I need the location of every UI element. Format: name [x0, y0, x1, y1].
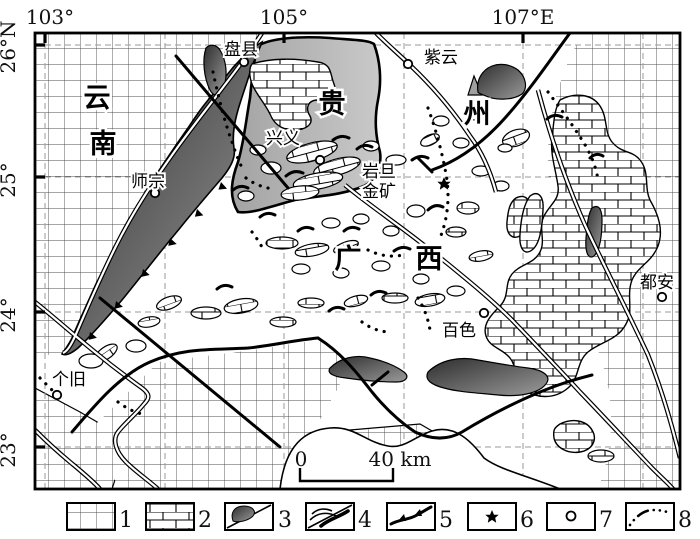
legend-number-1: 1	[119, 508, 133, 533]
marker-duan	[658, 293, 666, 301]
scale-zero: 0	[295, 447, 308, 471]
legend-item-limestone: 2	[146, 503, 212, 533]
label-xingyi: 兴义	[266, 129, 300, 149]
brick-swatch-icon	[146, 503, 194, 530]
legend-item-gold-deposit: 6	[468, 503, 534, 533]
legend-item-folds: 4	[306, 503, 372, 533]
label-gejiu: 个旧	[52, 370, 86, 390]
legend-number-5: 5	[439, 508, 453, 533]
label-yunnan-2: 南	[90, 129, 117, 160]
marker-gejiu	[53, 391, 61, 399]
lat-25: 25°	[0, 162, 20, 197]
lat-23: 23°	[0, 432, 20, 467]
legend-item-dotted-boundary: 8	[626, 503, 692, 533]
label-shizong: 师宗	[131, 172, 165, 192]
marker-xingyi	[316, 156, 324, 164]
geologic-map-figure: 0 40 km 103° 105° 107°E 26°N 25° 24° 23°…	[0, 0, 700, 539]
legend-item-thrust: 5	[387, 503, 453, 533]
label-guizhou-2: 州	[464, 99, 491, 130]
label-panxian: 盘县	[224, 40, 258, 60]
legend-number-7: 7	[599, 508, 613, 533]
lon-103: 103°	[26, 5, 74, 29]
legend-number-8: 8	[678, 508, 692, 533]
label-guangxi-1: 广	[335, 244, 362, 275]
legend-number-4: 4	[358, 508, 372, 533]
marker-baise	[480, 309, 488, 317]
legend-item-dark-body: 3	[225, 503, 292, 533]
label-baise: 百色	[442, 321, 476, 341]
lon-105: 105°	[260, 5, 308, 29]
lon-107e: 107°E	[492, 5, 555, 29]
legend-item-city: 7	[547, 503, 613, 533]
legend: 1 2 3 4 5	[67, 503, 692, 533]
legend-number-2: 2	[198, 508, 212, 533]
legend-item-grid: 1	[67, 503, 133, 533]
label-duan: 都安	[640, 273, 674, 293]
label-ziyun: 紫云	[424, 48, 458, 68]
lat-26n: 26°N	[0, 21, 20, 74]
label-guangxi-2: 西	[416, 244, 443, 275]
label-mine-line2: 金矿	[362, 182, 396, 202]
marker-ziyun	[404, 60, 412, 68]
lat-24: 24°	[0, 297, 20, 332]
legend-number-3: 3	[278, 508, 292, 533]
label-guizhou-1: 贵	[319, 89, 346, 120]
city-circle-icon	[567, 512, 576, 521]
legend-number-6: 6	[520, 508, 534, 533]
label-mine-line1: 岩旦	[362, 162, 396, 182]
mine-label: 岩旦 金矿	[362, 162, 396, 202]
scale-forty-km: 40 km	[369, 447, 432, 471]
grid-swatch-icon	[67, 503, 115, 530]
label-yunnan-1: 云	[84, 83, 111, 114]
